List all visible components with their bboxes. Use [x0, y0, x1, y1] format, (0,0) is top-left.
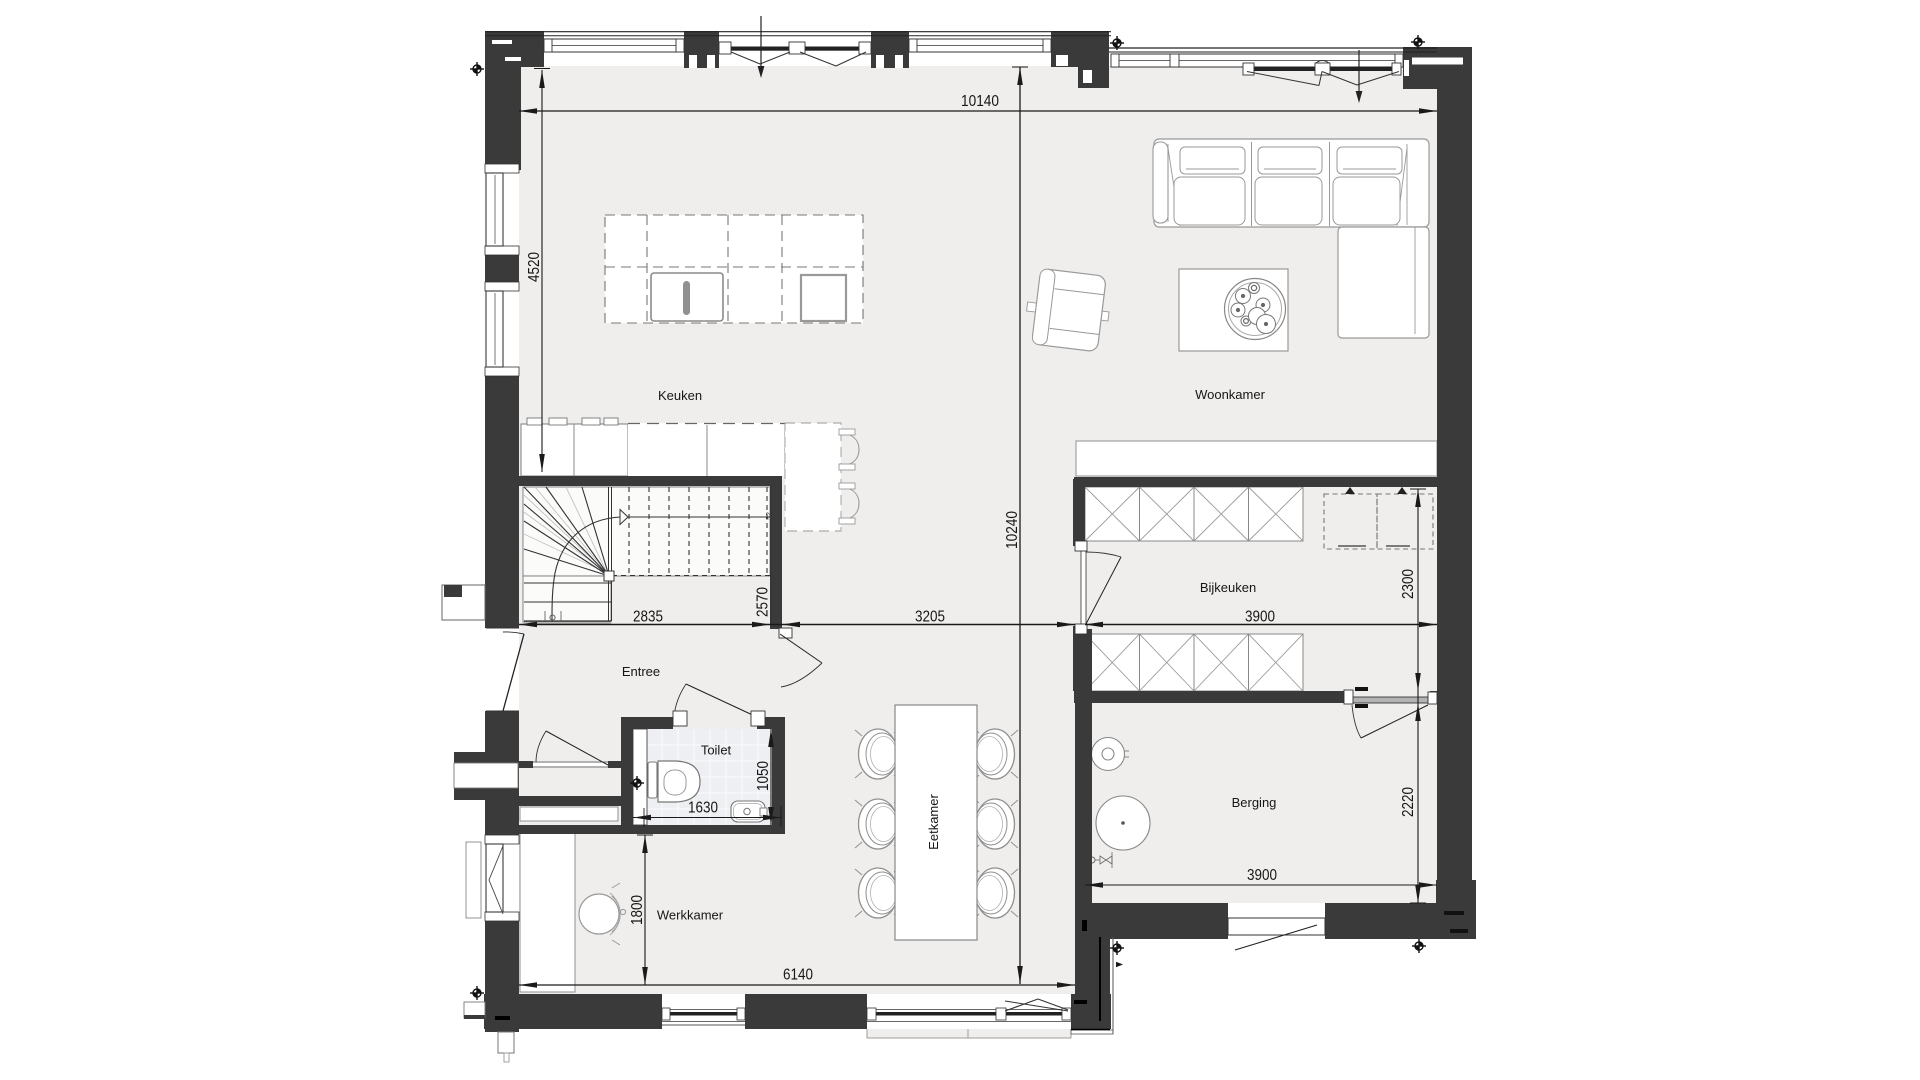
svg-text:3900: 3900 [1247, 867, 1277, 884]
svg-text:Woonkamer: Woonkamer [1195, 387, 1266, 402]
svg-text:4520: 4520 [526, 252, 543, 282]
svg-text:2300: 2300 [1400, 569, 1417, 599]
svg-text:10140: 10140 [961, 93, 999, 110]
svg-text:1800: 1800 [629, 895, 646, 925]
svg-text:1630: 1630 [688, 800, 718, 817]
svg-text:3205: 3205 [915, 609, 945, 626]
svg-text:Keuken: Keuken [658, 388, 702, 403]
svg-text:Eetkamer: Eetkamer [926, 794, 941, 850]
svg-text:Werkkamer: Werkkamer [657, 908, 724, 923]
svg-text:10240: 10240 [1004, 511, 1021, 549]
svg-text:Bijkeuken: Bijkeuken [1200, 580, 1256, 595]
svg-text:2220: 2220 [1400, 787, 1417, 817]
svg-text:2835: 2835 [633, 609, 663, 626]
svg-text:Berging: Berging [1232, 795, 1277, 810]
svg-text:6140: 6140 [783, 967, 813, 984]
svg-text:3900: 3900 [1245, 609, 1275, 626]
svg-text:Entree: Entree [622, 664, 660, 679]
svg-text:1050: 1050 [755, 761, 772, 791]
svg-text:2570: 2570 [755, 587, 772, 617]
svg-text:Toilet: Toilet [701, 743, 732, 758]
